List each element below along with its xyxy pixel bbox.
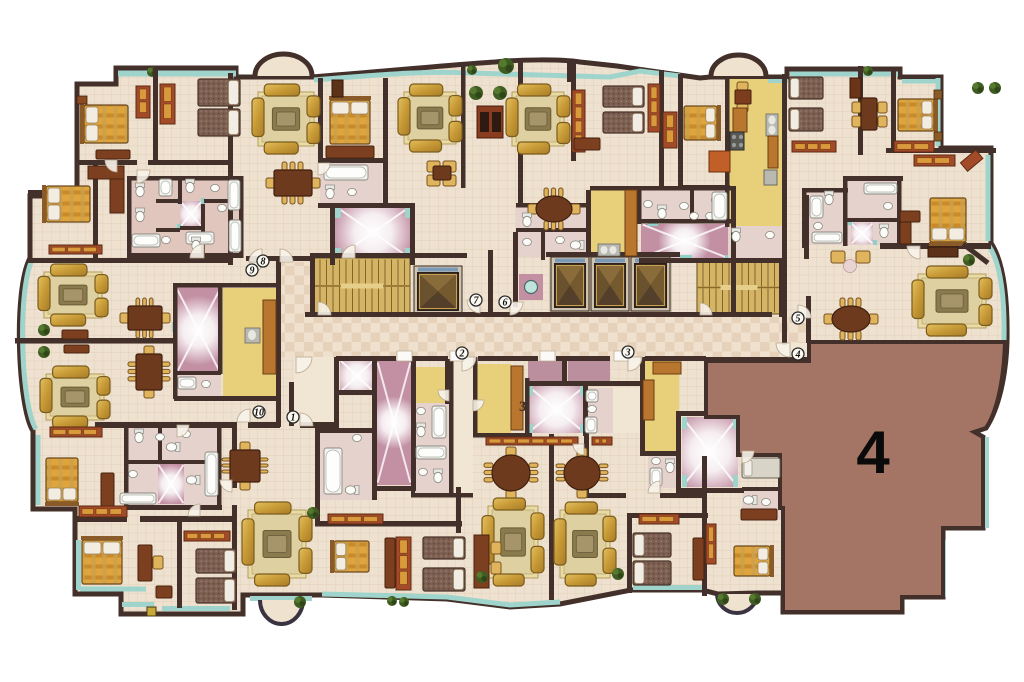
svg-text:6: 6: [503, 297, 508, 308]
svg-text:2: 2: [459, 348, 465, 359]
svg-text:10: 10: [254, 407, 264, 418]
svg-text:8: 8: [261, 256, 266, 267]
svg-text:3: 3: [519, 399, 527, 415]
svg-text:3: 3: [625, 347, 631, 358]
svg-text:9: 9: [250, 265, 255, 276]
svg-text:1: 1: [291, 412, 296, 423]
svg-text:4: 4: [856, 419, 890, 486]
svg-text:4: 4: [795, 349, 801, 360]
svg-text:5: 5: [796, 313, 801, 324]
